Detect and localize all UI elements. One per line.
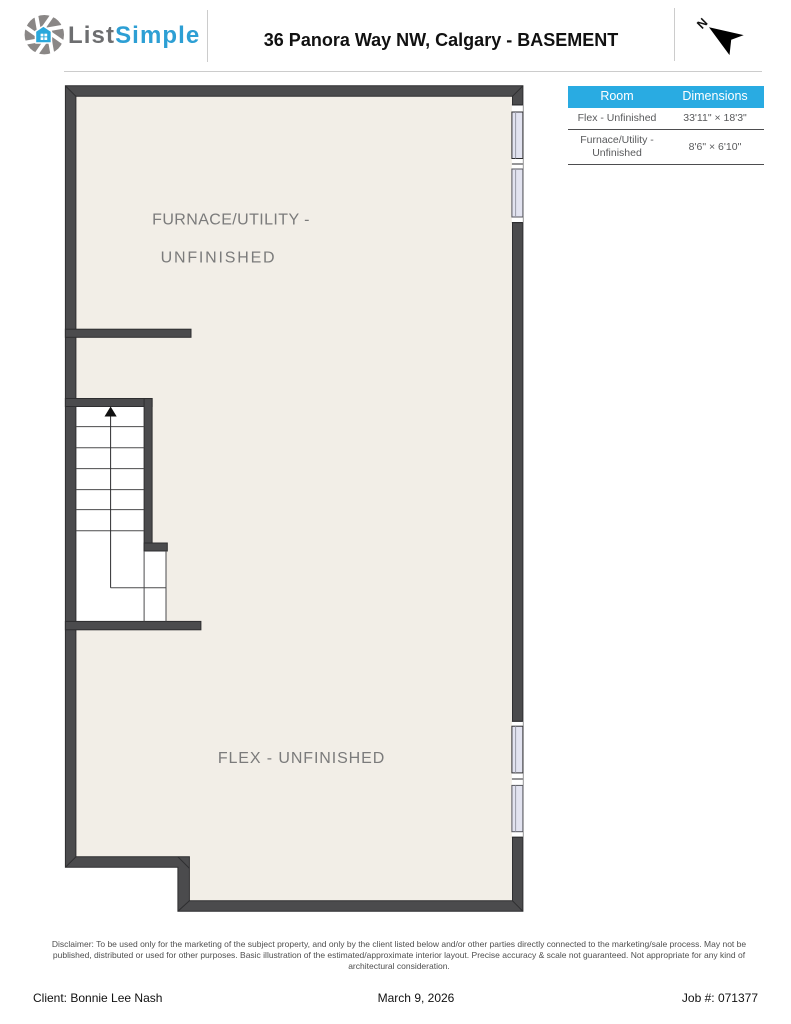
svg-text:UNFINISHED: UNFINISHED — [161, 250, 277, 267]
svg-text:FLEX - UNFINISHED: FLEX - UNFINISHED — [218, 750, 385, 767]
svg-text:FURNACE/UTILITY -: FURNACE/UTILITY - — [152, 212, 310, 229]
